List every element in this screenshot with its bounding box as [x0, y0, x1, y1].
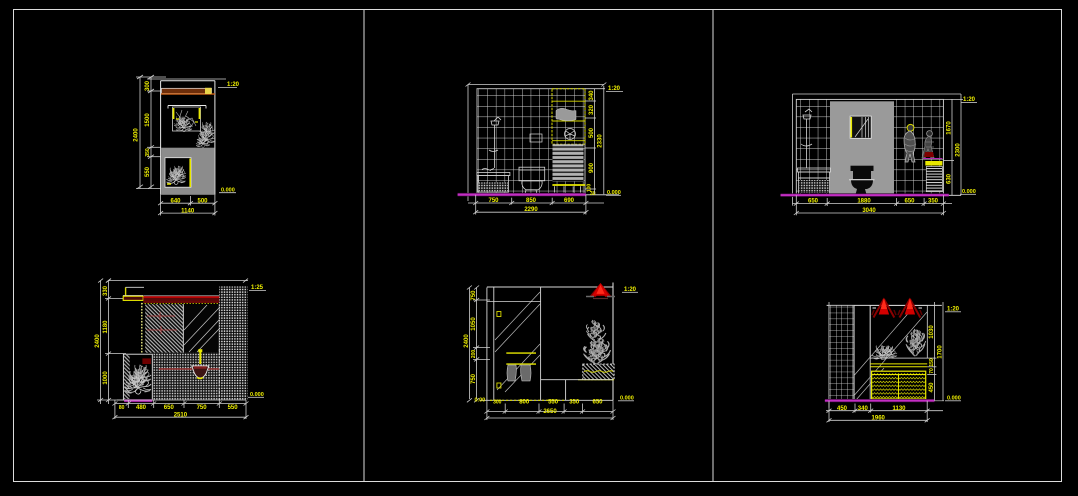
svg-text:300: 300: [493, 400, 502, 406]
svg-text:2290: 2290: [524, 207, 538, 213]
svg-text:350: 350: [569, 400, 580, 406]
svg-text:1500: 1500: [145, 113, 151, 127]
svg-text:340: 340: [858, 406, 869, 412]
svg-text:350: 350: [145, 148, 151, 157]
svg-text:640: 640: [170, 198, 181, 204]
svg-text:350: 350: [928, 199, 939, 205]
svg-text:2400: 2400: [134, 128, 140, 142]
svg-text:3040: 3040: [862, 208, 876, 214]
svg-text:2300: 2300: [956, 143, 962, 157]
svg-text:500: 500: [589, 127, 595, 138]
svg-text:1960: 1960: [872, 415, 886, 421]
svg-text:100: 100: [587, 184, 593, 193]
svg-text:650: 650: [592, 400, 603, 406]
svg-text:550: 550: [145, 166, 151, 177]
svg-text:2400: 2400: [464, 334, 470, 348]
svg-text:1000: 1000: [103, 371, 109, 385]
svg-text:330: 330: [103, 285, 109, 296]
svg-text:650: 650: [808, 199, 819, 205]
svg-text:150: 150: [929, 358, 935, 367]
svg-text:1140: 1140: [181, 208, 195, 214]
svg-text:200: 200: [471, 350, 477, 359]
svg-text:2330: 2330: [598, 134, 604, 148]
svg-text:750: 750: [197, 405, 208, 411]
svg-text:650: 650: [904, 199, 915, 205]
svg-text:1700: 1700: [937, 345, 943, 359]
svg-text:1130: 1130: [892, 406, 906, 412]
svg-text:630: 630: [947, 173, 953, 184]
svg-text:300: 300: [145, 80, 151, 91]
svg-text:480: 480: [136, 405, 147, 411]
svg-text:1030: 1030: [929, 325, 935, 339]
svg-text:2510: 2510: [174, 412, 188, 418]
svg-text:450: 450: [929, 382, 935, 393]
svg-text:650: 650: [164, 405, 175, 411]
svg-text:1050: 1050: [471, 317, 477, 331]
svg-text:550: 550: [228, 405, 239, 411]
svg-text:750: 750: [471, 290, 477, 301]
svg-text:2400: 2400: [95, 334, 101, 348]
svg-text:750: 750: [471, 373, 477, 384]
svg-text:1880: 1880: [857, 199, 871, 205]
svg-text:550: 550: [548, 400, 559, 406]
svg-text:2650: 2650: [543, 409, 557, 415]
svg-text:0.00: 0.00: [475, 398, 486, 404]
svg-text:1670: 1670: [947, 121, 953, 135]
svg-text:450: 450: [837, 406, 848, 412]
svg-text:750: 750: [488, 198, 499, 204]
svg-text:800: 800: [519, 400, 530, 406]
svg-text:70: 70: [929, 368, 935, 374]
svg-text:500: 500: [197, 198, 208, 204]
svg-text:340: 340: [589, 90, 595, 101]
svg-text:1180: 1180: [103, 320, 109, 334]
svg-text:320: 320: [589, 104, 595, 115]
svg-text:900: 900: [589, 162, 595, 173]
svg-text:690: 690: [564, 198, 575, 204]
svg-text:80: 80: [119, 405, 125, 411]
svg-text:850: 850: [526, 198, 537, 204]
